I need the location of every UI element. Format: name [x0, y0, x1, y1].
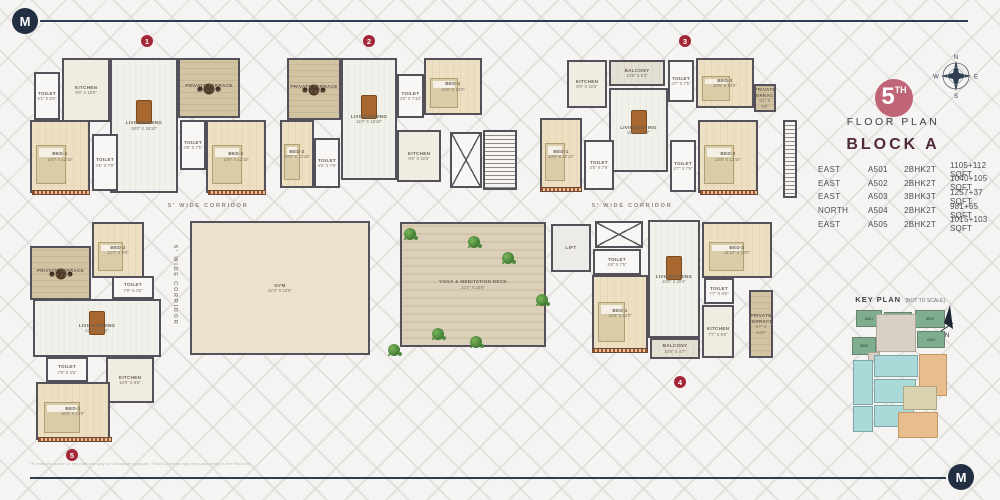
room-u1-bed2: BED-210'6" X 12'10" — [206, 120, 266, 193]
room-dimensions: 5'1" X 8'0" — [37, 96, 56, 101]
unit-facing: EAST — [818, 192, 868, 201]
plant-icon — [388, 344, 400, 356]
floor-plan-label: FLOOR PLAN — [833, 116, 953, 128]
unit-marker-2: 2 — [363, 35, 375, 47]
railing — [32, 190, 90, 195]
key-plan-block-label: A503 — [926, 317, 934, 321]
shaft-column — [595, 221, 643, 248]
railing — [700, 190, 758, 195]
room-lift: LIFT — [551, 224, 591, 272]
plant-icon — [468, 236, 480, 248]
plant-icon — [502, 252, 514, 264]
room-dimensions: 9'6" X 10'6" — [75, 90, 96, 95]
room-dimensions: 11'10" X 10'0" — [724, 250, 750, 255]
corridor-label-right: 5' WIDE CORRIDOR — [592, 203, 673, 209]
unit-marker-4: 4 — [674, 376, 686, 388]
plant-icon — [432, 328, 444, 340]
room-dimensions: 4'5" X 7'5" — [183, 145, 202, 150]
room-dimensions: 11'0" X 16'7" — [627, 130, 650, 135]
room-u1-toilet-c: TOILET4'5" X 7'5" — [180, 120, 206, 170]
key-plan-block-label: A504 — [927, 338, 935, 342]
unit-area: 1015+103 SQFT — [950, 215, 998, 233]
room-u5-bed2: BED-212'7" X 9'8" — [92, 222, 144, 278]
railing — [38, 437, 112, 442]
unit-type: 2BHK2T — [904, 179, 950, 188]
key-plan-block — [853, 406, 873, 432]
room-u3-toilet-a: TOILET4'7" X 7'5" — [668, 60, 694, 102]
room-dimensions: 12'3" X 9'8" — [50, 273, 71, 278]
room-dimensions: 10'0" X 9'6" — [119, 380, 140, 385]
railing — [208, 190, 266, 195]
room-dimensions: 7'9" X 4'5" — [123, 288, 142, 293]
room-u2-bed2: BED-210'0" X 12'10" — [280, 120, 314, 188]
room-dimensions: 23'3" X 10'0" — [85, 328, 109, 333]
room-dimensions: 32'4" X 23'6" — [461, 285, 485, 290]
room-dimensions: 4'5" X 7'9" — [317, 163, 336, 168]
room-name: PRIVATE TERRACE — [749, 313, 773, 324]
room-u4-terrace: PRIVATE TERRACE4'7" X 14'5" — [749, 290, 773, 358]
room-dimensions: 10'0" X 12'10" — [284, 154, 310, 159]
block-title: BLOCK A — [813, 136, 973, 154]
room-dimensions: 10'6" X 12'0" — [608, 313, 632, 318]
room-u2-terrace: PRIVATE TERRACE9'8" X 10'10" — [287, 58, 341, 120]
key-plan-block — [898, 412, 938, 438]
room-dimensions: 4'5" X 7'10" — [400, 96, 421, 101]
room-dimensions: 7'7" X 9'6" — [708, 332, 727, 337]
room-dimensions: 10'6" X 12'10" — [548, 154, 574, 159]
room-u5-toilet-b: TOILET7'9" X 4'5" — [46, 357, 88, 382]
room-name: PRIVATE TERRACE — [754, 87, 776, 98]
room-dimensions: 8'0" X 10'6" — [576, 84, 597, 89]
room-dimensions: 4'5" X 7'9" — [95, 163, 114, 168]
room-u4-balcony: BALCONY10'0" X 4'7" — [650, 338, 700, 359]
unit-marker-5: 5 — [66, 449, 78, 461]
corridor-label-left: 5' WIDE CORRIDOR — [168, 203, 249, 209]
floor-number-badge: 5 TH — [875, 79, 913, 117]
room-dimensions: 9'2" X 10'5" — [408, 156, 429, 161]
room-u5-toilet-a: TOILET7'9" X 4'5" — [112, 276, 154, 299]
unit-number: A503 — [868, 192, 904, 201]
room-u3-toilet-c: TOILET4'7" X 7'9" — [670, 140, 696, 192]
room-u4-living: LIVING/DINING10'0" X 20'4" — [648, 220, 700, 338]
room-dimensions: 10'4" X 10'10" — [196, 88, 222, 93]
room-u4-bed2: BED-211'10" X 10'0" — [702, 222, 772, 278]
room-u2-toilet-b: TOILET4'5" X 7'9" — [314, 138, 340, 188]
room-dimensions: 10'6" X 12'0" — [441, 87, 465, 92]
room-dimensions: 8'1" X 9'9" — [756, 98, 774, 108]
unit-type: 2BHK2T — [904, 165, 950, 174]
room-u3-balcony: BALCONY10'6" X 8'3" — [609, 60, 665, 86]
room-dimensions: 12'7" X 9'8" — [107, 250, 128, 255]
unit-facing: EAST — [818, 165, 868, 174]
room-dimensions: 10'6" X 12'10" — [223, 157, 249, 162]
plant-icon — [536, 294, 548, 306]
corridor-label-vertical: 5' WIDE CORRIDOR — [172, 245, 178, 345]
unit-marker-1: 1 — [141, 35, 153, 47]
room-u2-kitchen: KITCHEN9'2" X 10'5" — [397, 130, 441, 182]
room-u3-toilet-b: TOILET4'5" X 7'9" — [584, 140, 614, 190]
room-u5-kitchen: KITCHEN10'0" X 9'6" — [106, 357, 154, 403]
room-dimensions: 10'6" X 12'10" — [715, 157, 741, 162]
room-dimensions: 11'0" X 18'10" — [356, 119, 382, 124]
svg-text:N: N — [945, 333, 949, 339]
room-dimensions: 9'8" X 10'10" — [302, 89, 326, 94]
key-plan-block — [876, 314, 916, 352]
units-table-row: EASTA5052BHK2T1015+103 SQFT — [818, 217, 998, 231]
room-name: LIFT — [566, 245, 577, 251]
room-u3-bed3: BED-310'6" X 10'6" — [696, 58, 754, 108]
room-dimensions: 4'7" X 7'9" — [673, 166, 692, 171]
key-plan-block — [874, 355, 918, 377]
room-u1-bed1: BED-110'0" X 12'10" — [30, 120, 90, 193]
unit-number: A505 — [868, 220, 904, 229]
room-u3-kitchen: KITCHEN8'0" X 10'6" — [567, 60, 607, 108]
key-plan-north-arrow: N — [938, 303, 956, 339]
svg-text:E: E — [974, 75, 978, 81]
room-dimensions: 10'6" X 10'6" — [713, 83, 737, 88]
plant-icon — [470, 336, 482, 348]
room-u2-toilet-a: TOILET4'5" X 7'10" — [397, 74, 424, 118]
shaft-column — [450, 132, 482, 188]
compass-rose: N E S W — [933, 53, 979, 99]
room-u1-toilet-a: TOILET5'1" X 8'0" — [34, 72, 60, 120]
railing — [592, 348, 648, 353]
room-u3-living: LIVING/DINING11'0" X 16'7" — [609, 88, 668, 172]
unit-facing: EAST — [818, 220, 868, 229]
room-gym: GYM32'4" X 23'0" — [190, 221, 370, 355]
floor-plan-page: M M 5' WIDE CORRIDOR 5' WIDE CORRIDOR 5'… — [0, 0, 1000, 500]
room-u5-bed1: BED-110'6" X 13'0" — [36, 382, 110, 440]
svg-text:W: W — [933, 75, 939, 81]
room-u2-living: LIVING/DINING11'0" X 18'10" — [341, 58, 397, 180]
svg-text:N: N — [954, 55, 958, 61]
key-plan-block — [903, 386, 937, 410]
floor-plan-drawing: 5' WIDE CORRIDOR 5' WIDE CORRIDOR 5' WID… — [0, 0, 1000, 500]
room-u5-terrace: PRIVATE TERRACE12'3" X 9'8" — [30, 246, 91, 300]
unit-type: 3BHK3T — [904, 192, 950, 201]
room-u1-living: LIVING/DINING18'0" X 18'10" — [110, 58, 178, 193]
floor-number-suffix: TH — [895, 85, 907, 95]
room-dimensions: 7'7" X 4'5" — [709, 291, 728, 296]
room-dimensions: 10'6" X 8'3" — [626, 73, 647, 78]
room-u4-toilet-a: TOILET5'8" X 7'5" — [593, 249, 641, 275]
units-table: EASTA5012BHK2T1105+112 SQFTEASTA5022BHK2… — [818, 163, 998, 231]
room-dimensions: 10'0" X 12'10" — [47, 157, 73, 162]
key-plan-block — [853, 360, 873, 405]
room-dimensions: 18'0" X 18'10" — [131, 126, 157, 131]
key-plan-block-label: A505 — [860, 344, 868, 348]
room-u5-living: LIVING/DINING23'3" X 10'0" — [33, 299, 161, 357]
room-dimensions: 10'0" X 20'4" — [662, 279, 686, 284]
room-u4-toilet-b: TOILET7'7" X 4'5" — [704, 278, 734, 304]
room-u3-terrace: PRIVATE TERRACE8'1" X 9'9" — [754, 84, 776, 112]
unit-type: 2BHK2T — [904, 206, 950, 215]
room-dimensions: 10'6" X 13'0" — [61, 411, 85, 416]
room-u4-kitchen: KITCHEN7'7" X 9'6" — [702, 305, 734, 358]
room-dimensions: 10'0" X 4'7" — [664, 349, 685, 354]
room-u1-terrace: PRIVATE TERRACE10'4" X 10'10" — [178, 58, 240, 118]
disclaimer-text: *Furnitures shown in the plan are only f… — [30, 461, 450, 466]
room-dimensions: 4'5" X 7'9" — [589, 165, 608, 170]
room-u1-toilet-b: TOILET4'5" X 7'9" — [92, 134, 118, 191]
plant-icon — [404, 228, 416, 240]
room-u3-bed2: BED-210'6" X 12'10" — [698, 120, 758, 193]
staircase — [483, 130, 517, 190]
key-plan-block-label: A501 — [865, 317, 873, 321]
unit-type: 2BHK2T — [904, 220, 950, 229]
room-dimensions: 5'8" X 7'5" — [607, 262, 626, 267]
unit-number: A501 — [868, 165, 904, 174]
staircase — [783, 120, 797, 198]
unit-marker-3: 3 — [679, 35, 691, 47]
room-dimensions: 4'7" X 7'5" — [671, 81, 690, 86]
railing — [540, 187, 582, 192]
room-u3-bed1: BED-110'6" X 12'10" — [540, 118, 582, 190]
room-dimensions: 32'4" X 23'0" — [268, 288, 292, 293]
floor-number: 5 — [881, 79, 894, 115]
room-u1-kitchen: KITCHEN9'6" X 10'6" — [62, 58, 110, 122]
svg-text:S: S — [954, 94, 958, 99]
unit-number: A502 — [868, 179, 904, 188]
room-u4-bed1: BED-110'6" X 12'0" — [592, 275, 648, 351]
unit-number: A504 — [868, 206, 904, 215]
key-plan-title-text: KEY PLAN — [855, 295, 901, 304]
unit-facing: EAST — [818, 179, 868, 188]
unit-facing: NORTH — [818, 206, 868, 215]
room-u2-bed1: BED-110'6" X 12'0" — [424, 58, 482, 115]
room-dimensions: 4'7" X 14'5" — [751, 324, 771, 334]
room-dimensions: 7'9" X 4'5" — [57, 370, 76, 375]
